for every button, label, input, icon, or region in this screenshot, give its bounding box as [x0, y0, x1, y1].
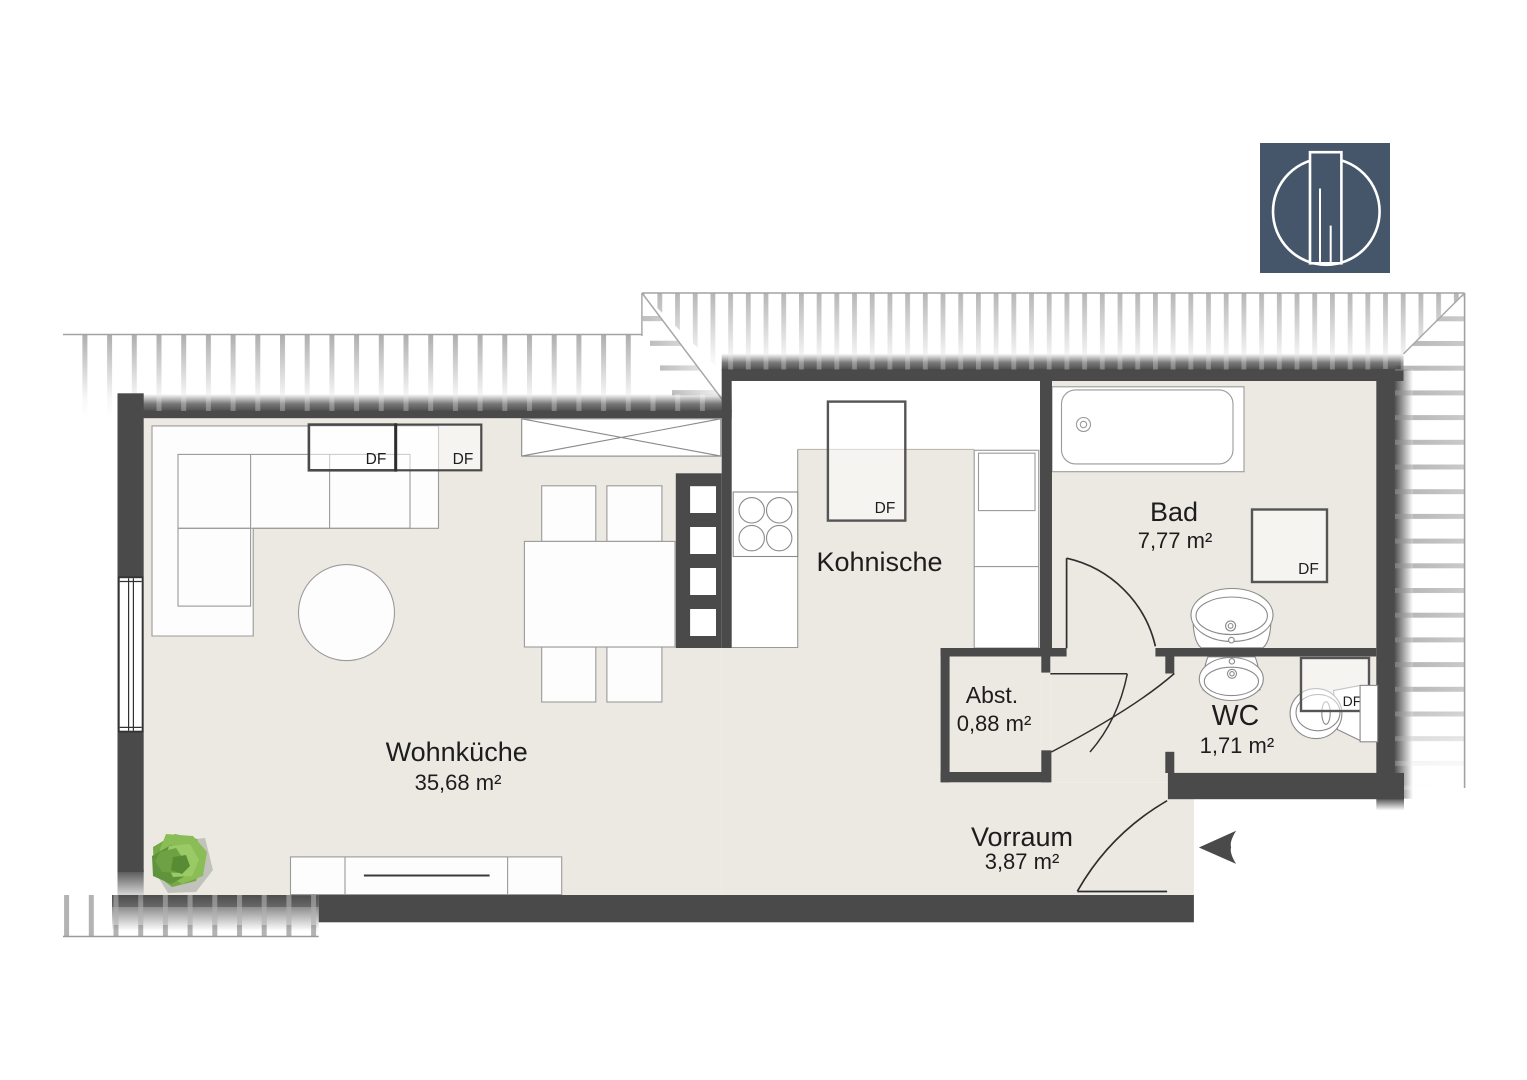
svg-text:DF: DF: [875, 500, 896, 517]
svg-text:WC: WC: [1212, 700, 1259, 732]
svg-text:1,71 m²: 1,71 m²: [1200, 733, 1275, 758]
svg-text:Bad: Bad: [1150, 497, 1198, 527]
svg-text:DF: DF: [1343, 693, 1362, 709]
svg-text:Vorraum: Vorraum: [971, 822, 1073, 852]
svg-text:Abst.: Abst.: [966, 682, 1018, 708]
svg-text:0,88 m²: 0,88 m²: [957, 711, 1032, 736]
svg-text:DF: DF: [366, 451, 387, 468]
svg-text:35,68 m²: 35,68 m²: [415, 770, 502, 795]
svg-text:3,87 m²: 3,87 m²: [985, 849, 1060, 874]
svg-text:7,77 m²: 7,77 m²: [1138, 528, 1213, 553]
svg-text:DF: DF: [1298, 561, 1319, 578]
svg-text:Kohnische: Kohnische: [816, 547, 942, 577]
svg-text:Wohnküche: Wohnküche: [386, 737, 528, 767]
svg-text:DF: DF: [453, 451, 474, 468]
